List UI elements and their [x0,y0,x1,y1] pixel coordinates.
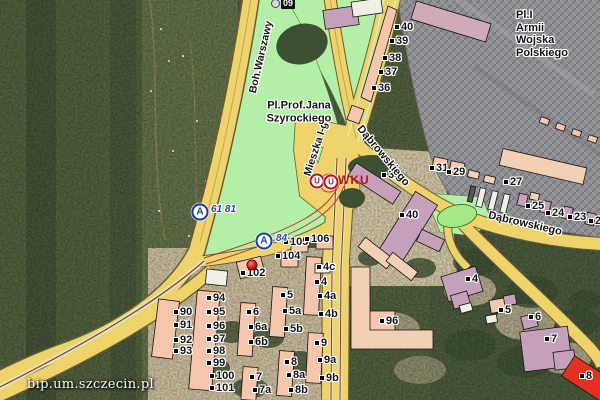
building-number-91: 91 [174,319,192,332]
office-poi-icon[interactable]: U [324,175,339,190]
building-number-7: 7 [545,333,557,346]
map-canvas[interactable]: 4039383736384031292725242322909192939495… [0,0,600,400]
building-number-8: 8 [580,370,592,383]
building-number-95: 95 [207,306,225,319]
building-number-24: 24 [546,207,564,220]
building-number-7: 7 [250,371,262,384]
bus-stop-icon[interactable]: A [192,204,209,221]
building-number-23: 23 [568,211,586,224]
building-number-9a: 9a [318,354,336,367]
office-poi-label: WKU [338,174,370,188]
office-poi-icon[interactable]: U [310,174,325,189]
building-number-39: 39 [390,35,408,48]
building-number-96: 96 [207,320,225,333]
map-svg [0,0,600,400]
building-number-36: 36 [372,82,390,95]
building-number-38: 38 [383,52,401,65]
building-number-4: 4 [466,273,478,286]
building-number-22: 22 [589,215,600,228]
building-number-96: 96 [380,315,398,328]
building-number-94: 94 [207,292,225,305]
building-number-9b: 9b [320,372,339,385]
building-number-40: 40 [400,209,418,222]
building-number-9: 9 [315,337,327,350]
building-number-7a: 7a [253,384,271,397]
building-number-5a: 5a [283,305,301,318]
building-number-8a: 8a [287,369,305,382]
badge-dot-icon [271,0,280,8]
route-badge: 09 [271,0,295,9]
building-number-6: 6 [529,311,541,324]
watermark: bip.um.szczecin.pl [27,377,154,392]
building-number-97: 97 [207,333,225,346]
building-number-5: 5 [499,304,511,317]
badge-text: 09 [281,0,295,9]
building-number-98: 98 [207,345,225,358]
building-number-99: 99 [207,357,225,370]
building-number-6b: 6b [249,336,268,349]
building-number-100: 100 [210,370,234,383]
building-number-6: 6 [247,306,259,319]
building-number-27: 27 [504,176,522,189]
area-label: Pl.Prof.JanaSzyrockiego [267,99,332,124]
building-number-25: 25 [526,200,544,213]
building-number-93: 93 [174,345,192,358]
building-number-101: 101 [210,382,234,395]
building-number-5: 5 [281,289,293,302]
building-number-104: 104 [276,250,300,263]
building-number-4a: 4a [318,290,336,303]
building-number-6a: 6a [249,321,267,334]
building-number-8: 8 [285,356,297,369]
building-number-90: 90 [174,306,192,319]
building-number-31: 31 [430,162,448,175]
building-number-8b: 8b [289,384,308,397]
bus-stop-icon[interactable]: A [256,233,273,250]
building-number-4b: 4b [319,308,338,321]
bus-stop-label: 61 81 [211,204,236,216]
building-number-40: 40 [395,21,413,34]
poi-marker[interactable] [247,260,258,271]
building-number-106: 106 [305,233,329,246]
bus-stop-label: 84 [276,233,287,245]
area-label: Pl.IArmiiWojskaPolskiego [516,9,568,60]
building-number-4: 4 [315,276,327,289]
building-number-37: 37 [379,66,397,79]
building-number-29: 29 [447,166,465,179]
building-number-5b: 5b [284,323,303,336]
building-number-4c: 4c [317,261,335,274]
